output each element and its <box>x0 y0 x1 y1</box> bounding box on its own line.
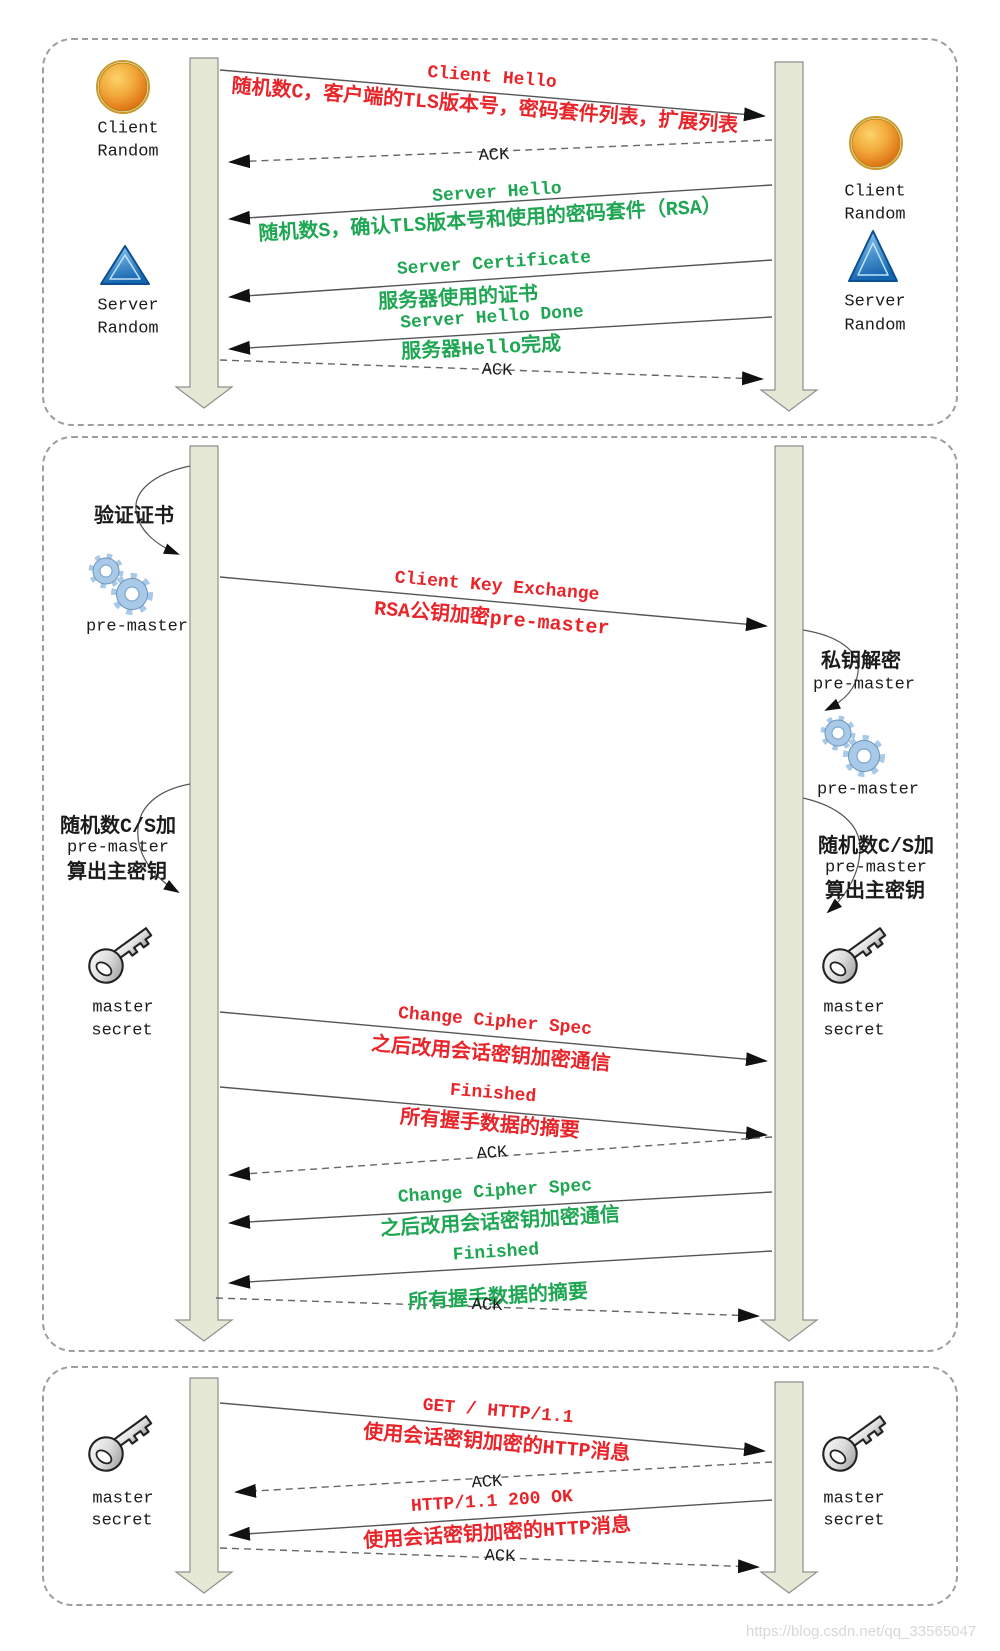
pre-master-label-left: pre-master <box>86 618 188 637</box>
master-secret-key-icon-left-bottom <box>83 1408 160 1477</box>
server-lifeline-phase3 <box>761 1382 817 1593</box>
tls-handshake-diagram: Client Hello 随机数C，客户端的TLS版本号，密码套件列表，扩展列表… <box>0 0 1000 1651</box>
master-secret-key-icon-left <box>83 920 160 989</box>
server-decrypt-label-1: 私钥解密 <box>821 644 901 674</box>
master-secret-key-icon-right-bottom <box>817 1408 894 1477</box>
master-secret-label-left-bottom-2: secret <box>91 1512 152 1531</box>
master-secret-label-left-bottom-1: master <box>92 1490 153 1509</box>
pre-master-label-right: pre-master <box>817 781 919 800</box>
server-random-icon-right <box>849 231 897 281</box>
client-random-icon-left <box>97 61 149 113</box>
phase3-ack2-label: ACK <box>484 1547 515 1567</box>
phase1-ack2-label: ACK <box>481 361 512 381</box>
client-random-icon-right <box>850 117 902 169</box>
client-lifeline-phase2 <box>176 446 232 1341</box>
client-random-label-left-1: Client <box>97 120 158 139</box>
master-secret-label-right-bottom-2: secret <box>823 1512 884 1531</box>
client-lifeline-phase3 <box>176 1378 232 1593</box>
client-random-label-left-2: Random <box>97 143 158 162</box>
phase3-ack1-label: ACK <box>471 1473 503 1494</box>
phase2-ack2-label: ACK <box>471 1296 502 1316</box>
watermark: https://blog.csdn.net/qq_33565047 <box>746 1623 976 1640</box>
master-secret-label-left-2: secret <box>91 1022 152 1041</box>
server-random-icon-left <box>101 246 149 284</box>
server-lifeline-phase1 <box>761 62 817 411</box>
server-random-label-right-2: Random <box>844 317 905 336</box>
derive-label-left-3: 算出主密钥 <box>67 855 167 885</box>
master-secret-label-right-bottom-1: master <box>823 1490 884 1509</box>
derive-label-right-1: 随机数C/S加 <box>818 829 934 859</box>
derive-label-left-1: 随机数C/S加 <box>60 809 176 839</box>
server-decrypt-label-2: pre-master <box>813 676 915 695</box>
client-lifeline-phase1 <box>176 58 232 408</box>
server-random-label-left-1: Server <box>97 297 158 316</box>
server-random-label-left-2: Random <box>97 320 158 339</box>
master-secret-label-left-1: master <box>92 999 153 1018</box>
master-secret-label-right-2: secret <box>823 1022 884 1041</box>
phase2-ack1-label: ACK <box>476 1143 508 1164</box>
pre-master-gears-icon-right <box>824 719 882 774</box>
server-random-label-right-1: Server <box>844 293 905 312</box>
phase1-ack1-label: ACK <box>478 146 509 166</box>
verify-cert-label: 验证证书 <box>94 499 174 529</box>
pre-master-gears-icon-left <box>92 557 150 612</box>
client-random-label-right-1: Client <box>844 183 905 202</box>
phase3-ack1-arrow <box>236 1462 772 1492</box>
master-secret-label-right-1: master <box>823 999 884 1018</box>
master-secret-key-icon-right <box>817 920 894 989</box>
server-lifeline-phase2 <box>761 446 817 1341</box>
client-random-label-right-2: Random <box>844 206 905 225</box>
derive-label-right-3: 算出主密钥 <box>825 874 925 904</box>
